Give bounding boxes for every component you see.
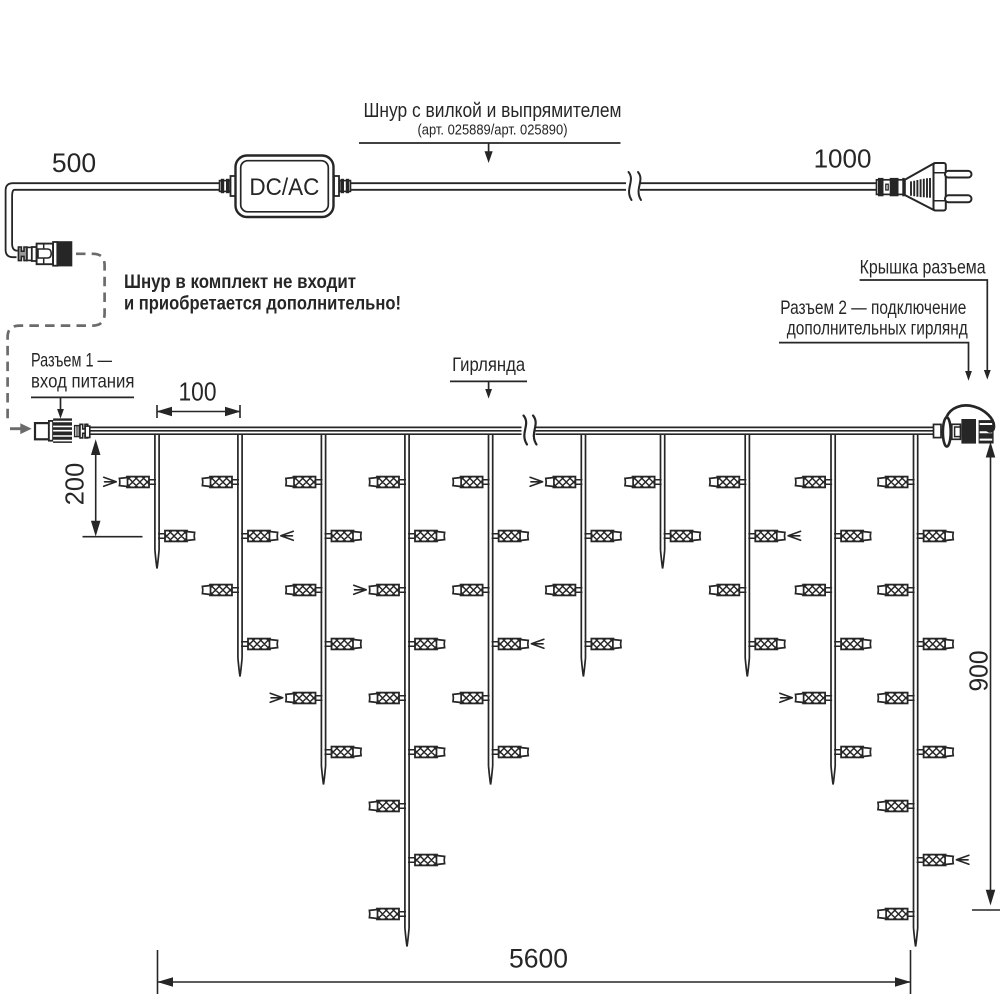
svg-text:200: 200	[60, 463, 90, 506]
svg-text:(арт. 025889/арт. 025890): (арт. 025889/арт. 025890)	[418, 123, 568, 139]
svg-text:100: 100	[179, 376, 217, 406]
svg-text:5600: 5600	[509, 943, 568, 973]
svg-text:Гирлянда: Гирлянда	[452, 354, 525, 376]
svg-text:1000: 1000	[814, 144, 872, 174]
svg-text:Шнур в комплект не входит: Шнур в комплект не входит	[124, 272, 356, 293]
svg-text:500: 500	[52, 148, 96, 178]
svg-text:дополнительных гирлянд: дополнительных гирлянд	[787, 318, 968, 340]
svg-text:Разъем 2 — подключение: Разъем 2 — подключение	[780, 297, 966, 319]
svg-text:Разъем 1 —: Разъем 1 —	[31, 350, 112, 372]
svg-text:900: 900	[964, 651, 994, 692]
svg-text:DC/AC: DC/AC	[249, 174, 319, 201]
svg-text:и приобретается дополнительно!: и приобретается дополнительно!	[124, 294, 401, 315]
svg-text:Крышка разъема: Крышка разъема	[860, 257, 986, 279]
svg-text:вход питания: вход питания	[31, 371, 135, 393]
svg-text:Шнур с вилкой и выпрямителем: Шнур с вилкой и выпрямителем	[364, 100, 622, 122]
